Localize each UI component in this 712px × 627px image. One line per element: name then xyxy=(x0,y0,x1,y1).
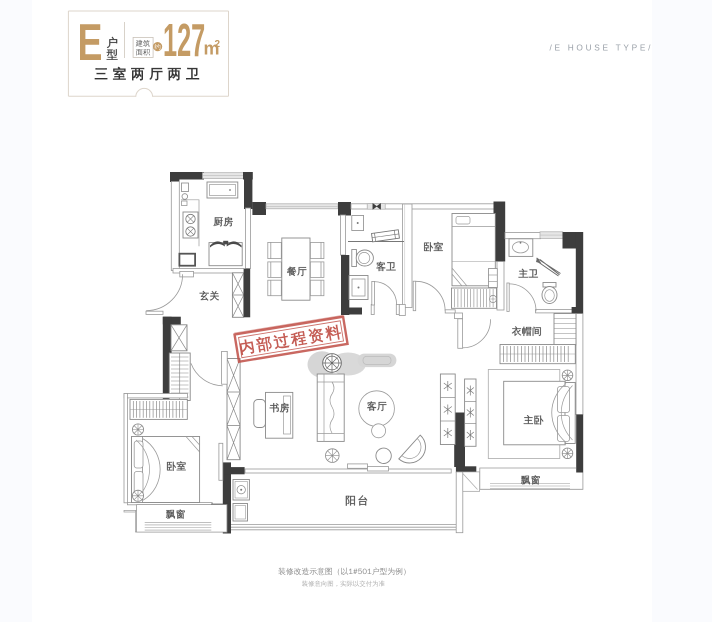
svg-text:/E HOUSE TYPE/: /E HOUSE TYPE/ xyxy=(550,42,654,52)
svg-text:E: E xyxy=(78,13,103,72)
svg-text:127: 127 xyxy=(163,14,205,66)
svg-text:2: 2 xyxy=(215,39,221,50)
